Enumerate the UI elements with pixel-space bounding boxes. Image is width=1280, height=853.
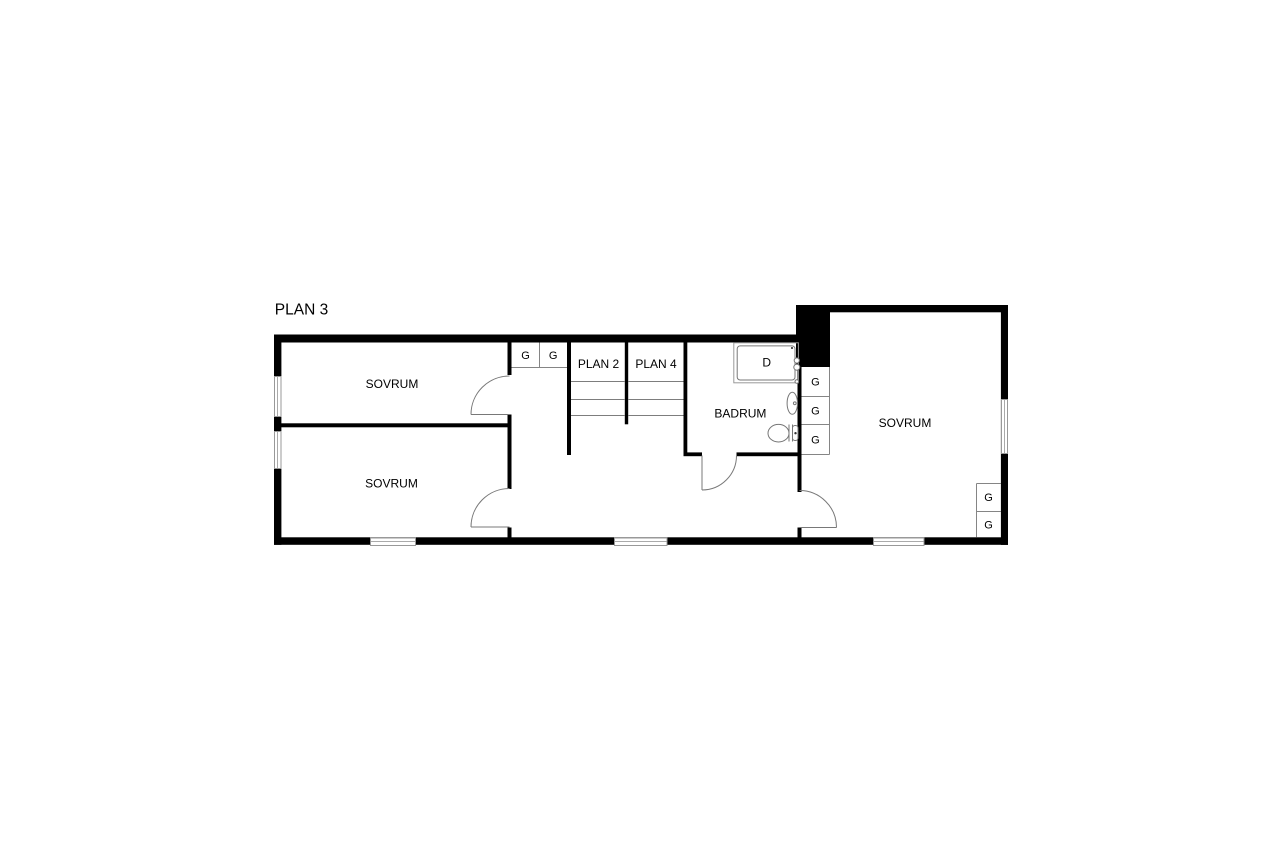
svg-text:BADRUM: BADRUM [714,406,766,420]
svg-text:SOVRUM: SOVRUM [879,416,932,430]
svg-text:PLAN 4: PLAN 4 [635,357,677,371]
svg-text:SOVRUM: SOVRUM [365,476,418,490]
svg-text:SOVRUM: SOVRUM [366,377,419,391]
svg-text:G: G [984,492,993,504]
svg-text:G: G [811,376,820,388]
svg-text:G: G [811,405,820,417]
svg-text:G: G [549,350,558,362]
svg-text:G: G [984,519,993,531]
svg-text:PLAN 3: PLAN 3 [275,301,328,318]
svg-text:G: G [811,435,820,447]
svg-text:PLAN 2: PLAN 2 [578,357,620,371]
svg-text:G: G [521,350,530,362]
svg-text:D: D [762,356,771,370]
